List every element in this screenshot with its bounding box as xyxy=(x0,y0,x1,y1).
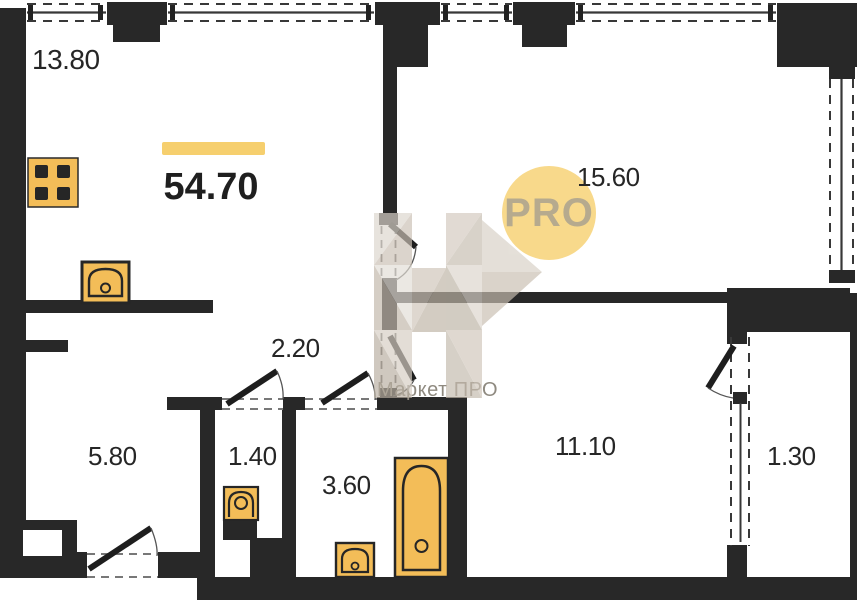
room-area-label-balcony: 1.30 xyxy=(767,441,816,472)
room-area-label-room-tr: 15.60 xyxy=(577,162,640,193)
watermark-logo xyxy=(0,0,857,600)
room-area-label-wc: 1.40 xyxy=(228,441,277,472)
pro-badge-text: PRO xyxy=(504,191,594,236)
room-area-label-bathroom: 3.60 xyxy=(322,470,371,501)
room-area-label-room-br: 11.10 xyxy=(555,431,616,462)
total-area-label: 54.70 xyxy=(152,166,270,209)
floor-plan: Маркет ПРО PRO 54.70 13.80 15.60 2.20 5. xyxy=(0,0,857,600)
room-area-label-kitchen: 13.80 xyxy=(32,44,100,76)
accent-bar xyxy=(162,142,265,155)
room-area-label-hallway: 2.20 xyxy=(271,333,320,364)
room-area-label-entry: 5.80 xyxy=(88,441,137,472)
